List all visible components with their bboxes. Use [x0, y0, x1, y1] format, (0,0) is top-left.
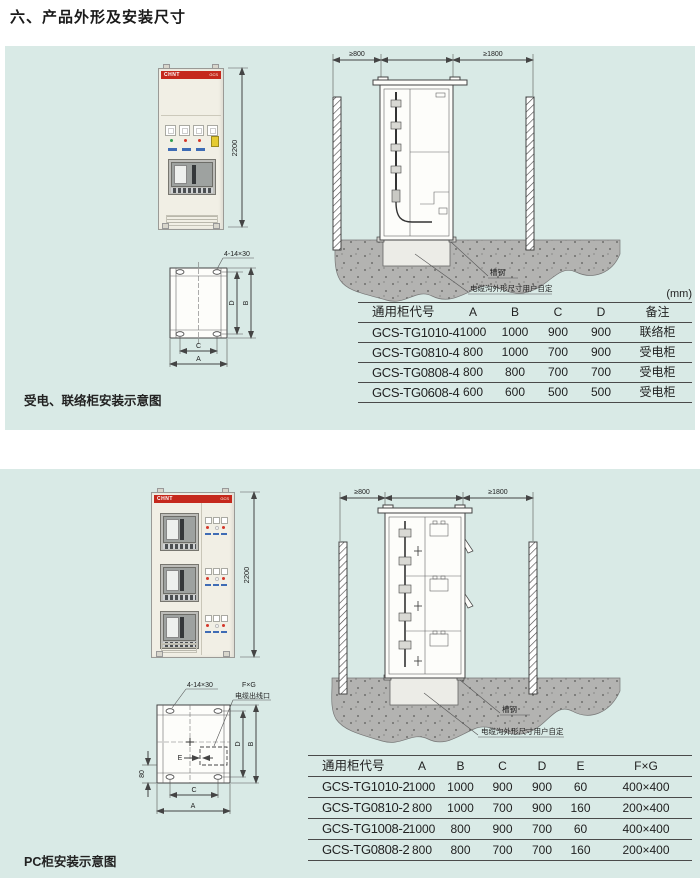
- col-header: D: [579, 303, 623, 323]
- col-header: E: [561, 756, 600, 777]
- dim-value: 900: [579, 343, 623, 363]
- dim-value: 200×400: [600, 798, 692, 819]
- table-header-row: 通用柜代号 A B C D 备注: [358, 303, 692, 323]
- cabinet-code: GCS-TG0810-2: [308, 798, 405, 819]
- height-dimension-drawing: 2200: [240, 482, 266, 670]
- dim-a-label: A: [196, 356, 201, 363]
- circuit-breaker-unit: [160, 564, 199, 602]
- dim-value: 500: [579, 383, 623, 403]
- label-strip: [196, 148, 205, 151]
- page-title: 六、产品外形及安装尺寸: [10, 6, 186, 27]
- wall-left: [333, 97, 341, 250]
- cable-trench: [390, 678, 458, 705]
- meter-window: [165, 125, 176, 136]
- breaker-face: [171, 162, 213, 187]
- incoming-mounting-plan-drawing: 4-14×30 D B C A: [138, 242, 273, 372]
- dim-value: 800: [493, 363, 537, 383]
- dim-value: 700: [523, 819, 561, 840]
- section1-caption: 受电、联络柜安装示意图: [24, 390, 162, 409]
- remark-value: 受电柜: [623, 343, 692, 363]
- table-row: GCS-TG0808-4 800 800 700 700 受电柜: [358, 363, 692, 383]
- brand-logo: CHNT: [164, 72, 180, 78]
- col-header: B: [439, 756, 482, 777]
- breaker-handle: [192, 165, 196, 184]
- dim-value: 160: [561, 798, 600, 819]
- indicator-group: [205, 615, 231, 637]
- incoming-spec-table: 通用柜代号 A B C D 备注 GCS-TG1010-4 1000 1000 …: [358, 302, 692, 403]
- dim-value: 1000: [493, 343, 537, 363]
- table-row: GCS-TG0608-4 600 600 500 500 受电柜: [358, 383, 692, 403]
- trench-note-label: 电缆沟外形尺寸用户自定: [481, 726, 564, 736]
- dim-value: 1000: [439, 798, 482, 819]
- dim-c-label: C: [191, 787, 196, 794]
- dim-value: 600: [493, 383, 537, 403]
- col-header: A: [453, 303, 493, 323]
- dim-value: 1000: [493, 323, 537, 343]
- circuit-breaker-unit: [160, 513, 199, 551]
- indicator-group: [205, 517, 231, 539]
- table-row: GCS-TG0810-2 800 1000 700 900 160 200×40…: [308, 798, 692, 819]
- table-row: GCS-TG0810-4 800 1000 700 900 受电柜: [358, 343, 692, 363]
- pc-mounting-plan-drawing: 4-14×30 F×G 电缆出线口 E 80 D B C A: [138, 674, 303, 846]
- dim-value: 200×400: [600, 840, 692, 861]
- col-header: 通用柜代号: [358, 303, 453, 323]
- dim-value: 500: [537, 383, 579, 403]
- circuit-breaker-unit: [168, 159, 216, 195]
- dim-value: 700: [579, 363, 623, 383]
- pc-cabinet-front-view: CHNT GCS: [151, 488, 235, 660]
- meter-window: [179, 125, 190, 136]
- dim-value: 900: [537, 323, 579, 343]
- cabinet-foot: [223, 651, 230, 657]
- cabinet-body: CHNT GCS: [158, 68, 224, 230]
- cabinet-foot: [213, 223, 220, 229]
- series-label: GCS: [209, 72, 218, 78]
- dim-b-label: B: [248, 741, 255, 746]
- table-header-row: 通用柜代号 A B C D E F×G: [308, 756, 692, 777]
- document-page: 六、产品外形及安装尺寸 CHNT GCS: [0, 0, 700, 886]
- cabinet-code: GCS-TG0608-4: [358, 383, 453, 403]
- dim-value: 800: [405, 840, 439, 861]
- height-dimension-label: 2200: [242, 567, 251, 584]
- dim-value: 1000: [453, 323, 493, 343]
- remark-value: 受电柜: [623, 363, 692, 383]
- cabinet-body: CHNT GCS: [151, 492, 235, 658]
- incoming-cabinet-front-view: CHNT GCS: [158, 64, 224, 230]
- brand-logo: CHNT: [157, 496, 173, 502]
- height-dimension-drawing: 2200: [228, 56, 254, 236]
- height-dimension-label: 2200: [230, 140, 239, 157]
- dim-value: 800: [439, 819, 482, 840]
- dim-a-label: A: [191, 803, 196, 810]
- label-strip: [182, 148, 191, 151]
- dim-value: 900: [482, 819, 523, 840]
- label-strip: [168, 148, 177, 151]
- outlet-name-label: 电缆出线口: [235, 691, 270, 700]
- breaker-terminal-strip: [171, 188, 213, 193]
- cabinet-code: GCS-TG0808-4: [358, 363, 453, 383]
- meter-window: [193, 125, 204, 136]
- dim-value: 400×400: [600, 777, 692, 798]
- dim-value: 700: [523, 840, 561, 861]
- dim-value: 900: [579, 323, 623, 343]
- panel-seam: [161, 115, 221, 116]
- mounting-hole-label: 4-14×30: [224, 251, 250, 258]
- selector-switch: [211, 136, 219, 147]
- cabinet-header-band: CHNT GCS: [154, 495, 232, 503]
- cabinet-code: GCS-TG0808-2: [308, 840, 405, 861]
- gap-right-label: ≥1800: [488, 489, 508, 496]
- pc-spec-table: 通用柜代号 A B C D E F×G GCS-TG1010-2 1000 10…: [308, 755, 692, 861]
- col-header: F×G: [600, 756, 692, 777]
- mounting-hole-label: 4-14×30: [187, 682, 213, 689]
- meter-window: [207, 125, 218, 136]
- ventilation-grille: [161, 643, 197, 653]
- col-header: D: [523, 756, 561, 777]
- dim-80-label: 80: [139, 770, 146, 778]
- dim-value: 1000: [405, 819, 439, 840]
- col-header: C: [537, 303, 579, 323]
- dim-value: 1000: [405, 777, 439, 798]
- channel-steel-label: 槽钢: [502, 704, 517, 714]
- remark-value: 受电柜: [623, 383, 692, 403]
- cable-trench: [383, 240, 450, 266]
- wall-right: [526, 97, 534, 250]
- dim-value: 900: [523, 798, 561, 819]
- dim-value: 700: [482, 840, 523, 861]
- dim-value: 400×400: [600, 819, 692, 840]
- dim-c-label: C: [196, 343, 201, 350]
- dim-value: 700: [482, 798, 523, 819]
- dim-d-label: D: [229, 300, 236, 305]
- indicator-lamp-red: [184, 139, 187, 142]
- remark-value: 联络柜: [623, 323, 692, 343]
- gap-left-label: ≥800: [354, 489, 370, 496]
- section2-caption: PC柜安装示意图: [24, 851, 116, 870]
- dim-value: 1000: [439, 777, 482, 798]
- dim-d-label: D: [235, 741, 242, 746]
- unit-label: (mm): [632, 288, 692, 300]
- drawer-lever: [465, 594, 473, 608]
- dim-b-label: B: [243, 300, 250, 305]
- incoming-installation-drawing: ≥800 ≥1800 槽钢 电缆沟外形尺寸用户自定: [320, 42, 655, 302]
- ventilation-grille: [166, 215, 218, 226]
- cabinet-side-view: [380, 85, 453, 240]
- breaker-window: [174, 165, 187, 184]
- col-header: B: [493, 303, 537, 323]
- cabinet-foot: [156, 651, 163, 657]
- concrete-foundation: [332, 678, 620, 742]
- cabinet-code: GCS-TG1008-2: [308, 819, 405, 840]
- col-header: 备注: [623, 303, 692, 323]
- dim-value: 700: [537, 363, 579, 383]
- dim-value: 800: [405, 798, 439, 819]
- col-header: A: [405, 756, 439, 777]
- cabinet-code: GCS-TG1010-2: [308, 777, 405, 798]
- dim-value: 60: [561, 819, 600, 840]
- dim-value: 60: [561, 777, 600, 798]
- wall-left: [339, 542, 347, 694]
- cabinet-foot: [162, 223, 169, 229]
- dim-value: 700: [537, 343, 579, 363]
- drawer-lever: [465, 539, 473, 553]
- col-header: C: [482, 756, 523, 777]
- indicator-group: [205, 568, 231, 590]
- outlet-size-label: F×G: [242, 682, 256, 689]
- table-row: GCS-TG1010-2 1000 1000 900 900 60 400×40…: [308, 777, 692, 798]
- dim-e-label: E: [178, 755, 183, 762]
- pc-installation-drawing: ≥800 ≥1800 槽钢: [320, 481, 655, 753]
- panel-seam: [201, 503, 202, 655]
- gap-right-label: ≥1800: [483, 51, 503, 58]
- trench-note-label: 电缆沟外形尺寸用户自定: [470, 283, 553, 293]
- series-label: GCS: [220, 496, 229, 502]
- cabinet-code: GCS-TG1010-4: [358, 323, 453, 343]
- dim-value: 160: [561, 840, 600, 861]
- channel-steel-label: 槽钢: [490, 267, 505, 277]
- dim-value: 900: [523, 777, 561, 798]
- indicator-lamp-red: [198, 139, 201, 142]
- dim-value: 800: [439, 840, 482, 861]
- table-row: GCS-TG1010-4 1000 1000 900 900 联络柜: [358, 323, 692, 343]
- gap-left-label: ≥800: [349, 51, 365, 58]
- indicator-lamp-green: [170, 139, 173, 142]
- wall-right: [529, 542, 537, 694]
- cabinet-code: GCS-TG0810-4: [358, 343, 453, 363]
- table-row: GCS-TG0808-2 800 800 700 700 160 200×400: [308, 840, 692, 861]
- dim-value: 900: [482, 777, 523, 798]
- cabinet-header-band: CHNT GCS: [161, 71, 221, 79]
- table-row: GCS-TG1008-2 1000 800 900 700 60 400×400: [308, 819, 692, 840]
- col-header: 通用柜代号: [308, 756, 405, 777]
